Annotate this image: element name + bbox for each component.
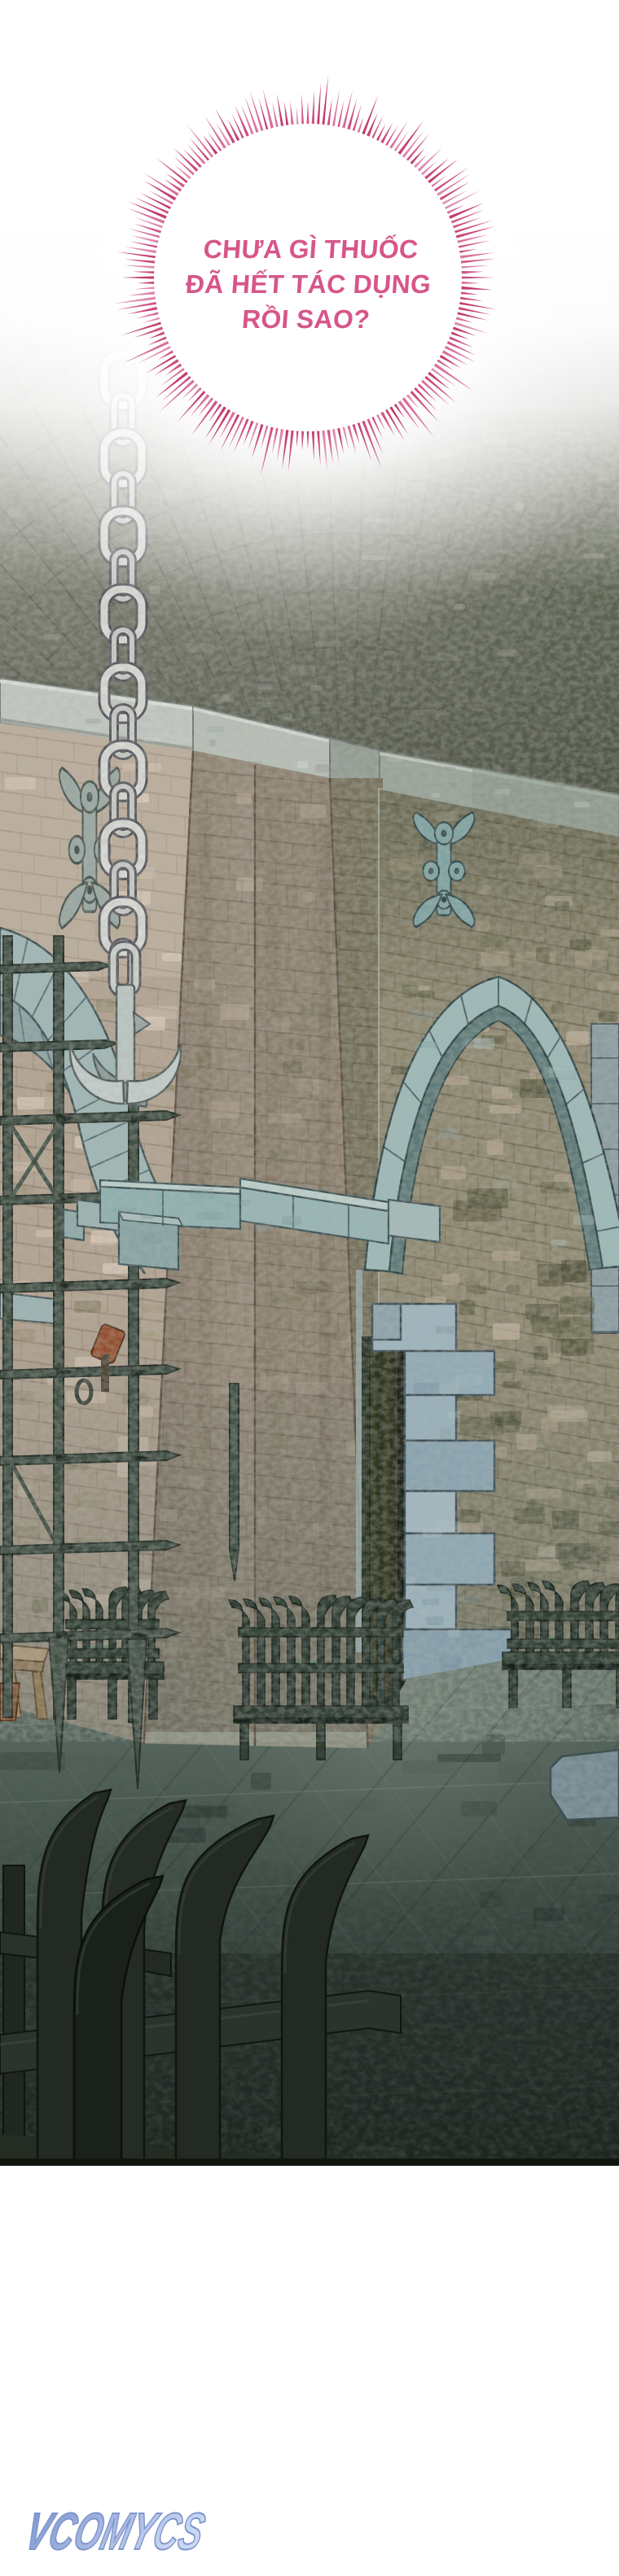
svg-text:ĐÃ HẾT TÁC DỤNG: ĐÃ HẾT TÁC DỤNG <box>185 269 432 299</box>
svg-text:CHƯA GÌ THUỐC: CHƯA GÌ THUỐC <box>202 234 419 264</box>
svg-text:VCOMYCS: VCOMYCS <box>20 2502 211 2561</box>
svg-text:RỒI SAO?: RỒI SAO? <box>241 304 371 334</box>
